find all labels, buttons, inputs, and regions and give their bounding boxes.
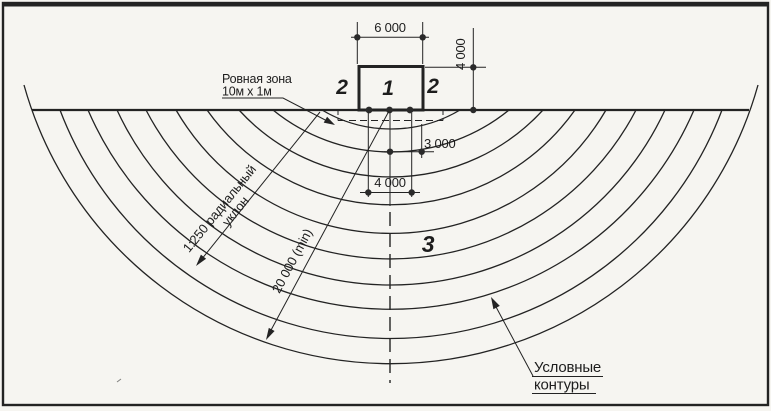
dim-dot xyxy=(365,189,371,195)
contour-arc xyxy=(88,110,694,309)
dim-outer-offset-label: 4 000 xyxy=(374,175,406,190)
dim-dot xyxy=(409,189,415,195)
dim-dot xyxy=(354,34,360,40)
survey-point-dot xyxy=(407,107,414,114)
min-radius-arrowhead-icon xyxy=(266,328,275,340)
flat-zone-arrowhead-icon xyxy=(324,117,335,125)
drawing-sheet: 6 000 4 000 3 000 4 000 Ровная зона xyxy=(0,0,771,411)
zone-marker-outer: 3 xyxy=(422,231,435,257)
dim-dot xyxy=(387,149,393,155)
contour-arcs xyxy=(24,85,758,364)
sheet-border xyxy=(3,3,768,405)
min-radius-line xyxy=(270,111,389,332)
contour-arc xyxy=(273,110,509,152)
dim-right-height-label: 4 000 xyxy=(453,38,468,70)
dim-top-width: 6 000 xyxy=(351,20,429,64)
contours-note-line1: Условные xyxy=(534,359,601,376)
contours-note-line2: контуры xyxy=(534,377,589,394)
zone-marker-right: 2 xyxy=(426,75,439,98)
contour-arc xyxy=(24,85,758,364)
slope-note-line1: 1:250 радиальный xyxy=(180,162,259,255)
flat-zone-note-line2: 10м х 1м xyxy=(222,85,272,99)
dim-top-width-label: 6 000 xyxy=(374,20,406,35)
survey-point-dot xyxy=(366,107,373,114)
zone-marker-center: 1 xyxy=(382,77,393,100)
min-radius-group: 20 000 (min) xyxy=(266,111,389,340)
contour-arc xyxy=(60,110,722,338)
contours-leader-line xyxy=(495,305,533,376)
dim-outer-offset: 4 000 xyxy=(360,175,420,196)
dim-inner-offset: 3 000 xyxy=(384,136,456,155)
zone-marker-left: 2 xyxy=(335,76,348,99)
contours-arrowhead-icon xyxy=(491,297,500,309)
flat-zone-note: Ровная зона 10м х 1м xyxy=(222,72,335,125)
dim-right-height: 4 000 xyxy=(425,28,486,113)
diagram-canvas: 6 000 4 000 3 000 4 000 Ровная зона xyxy=(0,0,771,411)
dim-dot xyxy=(470,64,476,70)
contour-arc xyxy=(239,110,543,177)
dim-dot xyxy=(470,107,476,113)
dim-inner-offset-label: 3 000 xyxy=(424,136,456,151)
contour-arc xyxy=(207,110,575,205)
scan-artifact xyxy=(117,379,121,382)
dim-dot xyxy=(420,34,426,40)
